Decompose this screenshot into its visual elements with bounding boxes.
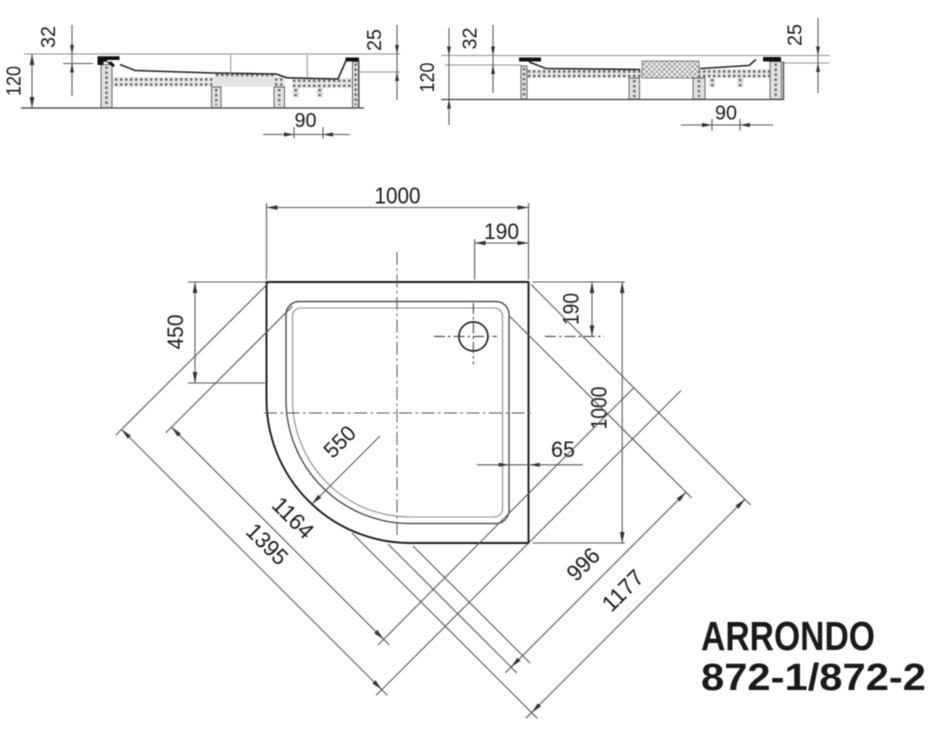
- svg-text:1000: 1000: [375, 183, 421, 209]
- svg-text:ARRONDO: ARRONDO: [701, 613, 875, 659]
- svg-text:90: 90: [715, 103, 737, 125]
- svg-text:90: 90: [295, 110, 317, 132]
- svg-text:32: 32: [38, 26, 60, 48]
- svg-text:872-1/872-2: 872-1/872-2: [701, 657, 926, 699]
- svg-text:120: 120: [417, 63, 439, 93]
- svg-text:32: 32: [460, 28, 482, 50]
- svg-text:190: 190: [559, 293, 584, 325]
- svg-text:25: 25: [785, 24, 807, 46]
- svg-text:120: 120: [4, 66, 26, 96]
- svg-text:25: 25: [364, 29, 386, 51]
- svg-text:190: 190: [484, 219, 519, 244]
- svg-text:450: 450: [163, 315, 188, 350]
